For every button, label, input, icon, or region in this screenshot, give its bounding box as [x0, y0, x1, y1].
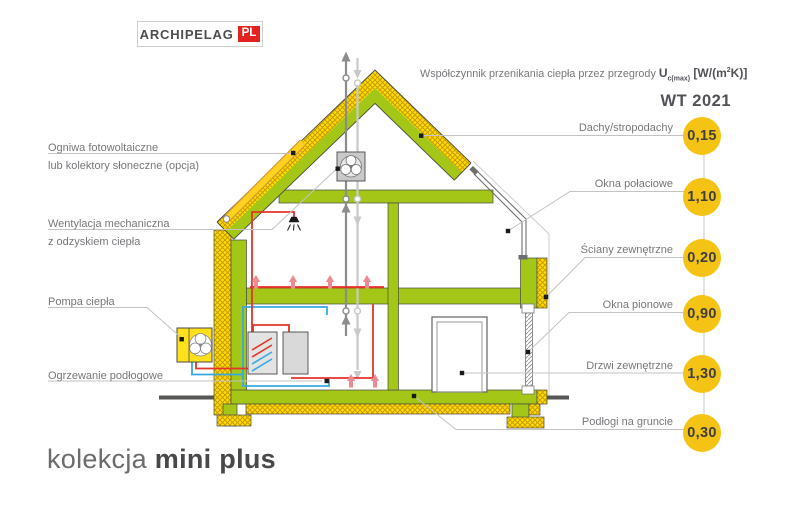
value-badge-roofs: 0,15 [683, 117, 721, 155]
value-badge-ground-floors: 0,30 [683, 414, 721, 452]
left-wall [231, 240, 247, 404]
label-vertical-windows: Okna pionowe [603, 299, 673, 311]
left-footing-insulation [217, 415, 251, 426]
wt-standard-label: WT 2021 [420, 92, 731, 111]
fan-icon [341, 156, 362, 178]
value-badge-external-doors: 1,30 [683, 355, 721, 393]
house-structure [214, 190, 547, 428]
right-base-insulation [537, 390, 547, 404]
coefficient-header: Współczynnik przenikania ciepła przez pr… [420, 66, 731, 82]
coefficient-caption: Współczynnik przenikania ciepła przez pr… [420, 68, 656, 80]
label-photovoltaic: Ogniwa fotowoltaiczne lub kolektory słon… [48, 139, 199, 175]
ventilation-unit [337, 152, 365, 181]
logo-pl-badge: PL [238, 26, 261, 42]
water-tank [248, 332, 277, 374]
fan-icon [190, 333, 212, 356]
archipelag-logo: ARCHIPELAG PL [137, 21, 263, 47]
heat-pump-unit [177, 328, 212, 362]
value-badge-roof-windows: 1,10 [683, 178, 721, 216]
infographic-page: ARCHIPELAG PL Współczynnik przenikania c… [0, 0, 787, 530]
wall-window [522, 304, 534, 394]
right-knee-wall [521, 258, 538, 308]
label-photovoltaic-line1: Ogniwa fotowoltaiczne [48, 139, 199, 157]
label-photovoltaic-line2: lub kolektory słoneczne (opcja) [48, 157, 199, 175]
collection-title: kolekcja mini plus [47, 444, 276, 475]
interior-wall [388, 203, 399, 390]
label-ventilation-line1: Wentylacja mechaniczna [48, 215, 169, 233]
collection-title-name: mini plus [155, 444, 276, 474]
auxiliary-unit [283, 332, 308, 374]
slab-insulation [246, 404, 510, 414]
value-badge-vertical-windows: 0,90 [683, 295, 721, 333]
collection-title-prefix: kolekcja [47, 444, 147, 474]
label-ventilation-line2: z odzyskiem ciepła [48, 233, 169, 251]
gutter-circle [223, 216, 229, 222]
value-badge-external-walls: 0,20 [683, 239, 721, 277]
label-heat-pump: Pompa ciepła [48, 293, 115, 311]
label-floor-heating: Ogrzewanie podłogowe [48, 367, 163, 385]
label-roofs: Dachy/stropodachy [579, 122, 673, 134]
left-wall-insulation [214, 230, 231, 415]
right-footing-insulation [507, 417, 544, 428]
label-external-walls: Ściany zewnętrzne [581, 244, 673, 256]
door [432, 317, 487, 392]
right-footing-insulation-side [529, 404, 540, 415]
right-knee-wall-insulation [537, 258, 547, 308]
shower-icon [288, 217, 301, 231]
label-ventilation: Wentylacja mechaniczna z odzyskiem ciepł… [48, 215, 169, 251]
ground-slab [231, 390, 537, 404]
label-roof-windows: Okna połaciowe [595, 178, 673, 190]
roof-window [469, 166, 527, 260]
label-external-doors: Drzwi zewnętrzne [586, 360, 673, 372]
logo-brand-text: ARCHIPELAG [140, 27, 234, 42]
label-ground-floors: Podłogi na gruncie [582, 416, 673, 428]
attic-floor [279, 190, 493, 203]
u-value-formula: Uc(max) [W/(m2K)] [659, 66, 747, 80]
